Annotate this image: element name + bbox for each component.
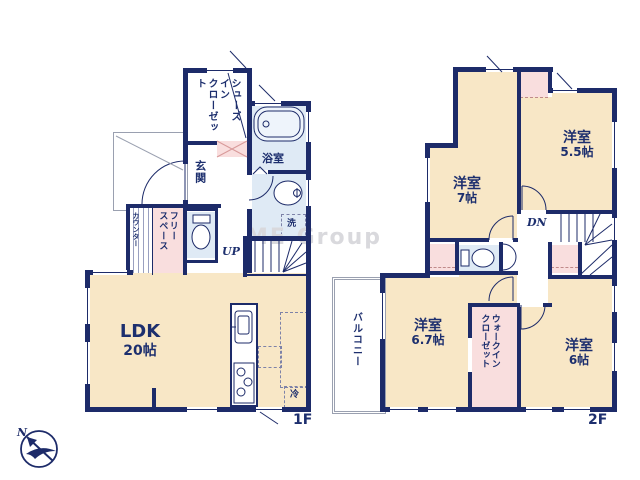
- bedroom7-label: 洋室 7帖: [432, 176, 502, 206]
- floor2-label: 2F: [588, 412, 607, 428]
- floorplan: シューズインクローゼット 玄関 浴室 洗 カウンター フリースペース UP LD…: [0, 0, 640, 480]
- kitchen-sink-icon: [232, 311, 252, 343]
- stairs-up-icon: [255, 241, 306, 272]
- laundry-label: 洗: [287, 219, 296, 229]
- shoes-closet-label: シューズインクローゼット: [194, 78, 240, 140]
- step-x-icon: [217, 141, 247, 157]
- fridge-label: 冷: [290, 390, 299, 400]
- toilet-icon: [192, 215, 210, 249]
- compass-north-label: N: [16, 426, 28, 439]
- bedroom6-label: 洋室 6帖: [541, 338, 617, 368]
- linework-layer: [0, 0, 640, 480]
- porch-line: [116, 136, 183, 170]
- stairs-up-label: UP: [222, 246, 240, 259]
- free-space-label: フリースペース: [157, 211, 178, 271]
- stairs-down-icon: [561, 212, 612, 275]
- ldk-label: LDK 20帖: [100, 322, 180, 359]
- washbasin-icon: [274, 181, 302, 205]
- bedroom67-label: 洋室 6.7帖: [393, 318, 463, 348]
- genkan-label: 玄関: [193, 160, 206, 184]
- folding-door-icon: [253, 167, 267, 174]
- counter-label: カウンター: [132, 212, 140, 247]
- stove-icon: [234, 363, 254, 403]
- floor1-label: 1F: [293, 412, 312, 428]
- stairs-down-label: DN: [527, 217, 547, 230]
- bathroom-label: 浴室: [262, 153, 284, 166]
- toilet-icon: [461, 249, 494, 267]
- wic-label: ウォークインクローゼット: [479, 314, 500, 402]
- bedroom55-label: 洋室 5.5帖: [546, 130, 608, 160]
- balcony-label: バルコニー: [350, 312, 362, 367]
- compass-icon: N: [14, 424, 62, 472]
- bathtub-icon: [254, 107, 304, 141]
